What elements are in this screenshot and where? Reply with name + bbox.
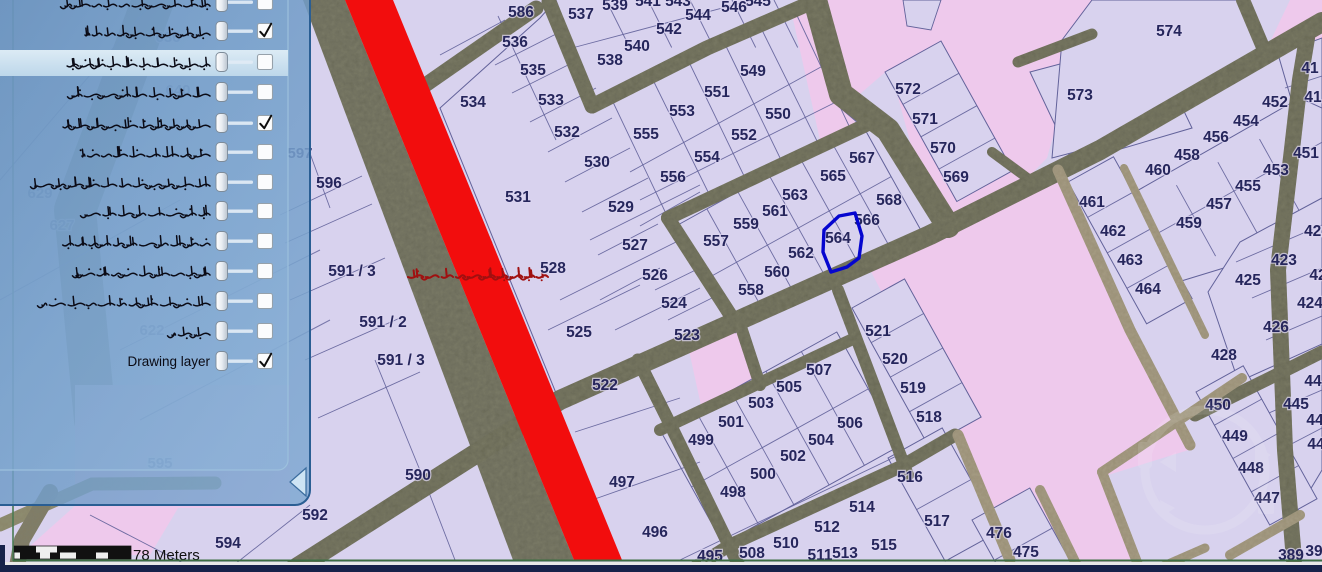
svg-text:462: 462 <box>1100 223 1126 240</box>
svg-text:573: 573 <box>1067 87 1093 104</box>
svg-text:455: 455 <box>1235 178 1261 195</box>
svg-text:453: 453 <box>1263 162 1289 179</box>
svg-text:594: 594 <box>215 535 241 552</box>
svg-text:590: 590 <box>405 467 431 484</box>
svg-text:522: 522 <box>592 377 618 394</box>
svg-text:549: 549 <box>740 63 766 80</box>
svg-text:523: 523 <box>674 327 700 344</box>
svg-text:424: 424 <box>1297 295 1322 312</box>
svg-text:452: 452 <box>1262 94 1288 111</box>
svg-text:503: 503 <box>748 395 774 412</box>
svg-text:558: 558 <box>738 282 764 299</box>
svg-text:Drawing layer: Drawing layer <box>127 354 210 369</box>
svg-text:524: 524 <box>661 295 687 312</box>
svg-text:515: 515 <box>871 537 897 554</box>
svg-text:499: 499 <box>688 432 714 449</box>
svg-text:546: 546 <box>721 0 747 16</box>
svg-text:514: 514 <box>849 499 875 516</box>
svg-text:535: 535 <box>520 62 546 79</box>
svg-text:517: 517 <box>924 513 950 530</box>
svg-text:457: 457 <box>1206 196 1232 213</box>
svg-text:502: 502 <box>780 448 806 465</box>
svg-text:570: 570 <box>930 140 956 157</box>
svg-text:497: 497 <box>609 474 635 491</box>
svg-text:505: 505 <box>776 379 802 396</box>
svg-text:42: 42 <box>1309 267 1322 284</box>
svg-text:591 / 3: 591 / 3 <box>328 263 376 280</box>
svg-text:591 / 3: 591 / 3 <box>377 352 425 369</box>
svg-text:586: 586 <box>508 4 534 21</box>
svg-text:421: 421 <box>1304 223 1322 240</box>
svg-text:574: 574 <box>1156 23 1182 40</box>
svg-text:501: 501 <box>718 414 744 431</box>
svg-text:560: 560 <box>764 264 790 281</box>
svg-text:544: 544 <box>685 7 711 24</box>
svg-text:41: 41 <box>1304 89 1322 106</box>
svg-text:550: 550 <box>765 106 791 123</box>
svg-text:541: 541 <box>635 0 661 10</box>
svg-text:537: 537 <box>568 6 594 23</box>
svg-text:551: 551 <box>704 84 730 101</box>
svg-text:428: 428 <box>1211 347 1237 364</box>
svg-text:556: 556 <box>660 169 686 186</box>
svg-text:555: 555 <box>633 126 659 143</box>
svg-text:534: 534 <box>460 94 486 111</box>
svg-text:423: 423 <box>1271 252 1297 269</box>
svg-text:568: 568 <box>876 192 902 209</box>
svg-text:496: 496 <box>642 524 668 541</box>
svg-text:463: 463 <box>1117 252 1143 269</box>
svg-text:552: 552 <box>731 127 757 144</box>
svg-text:476: 476 <box>986 525 1012 542</box>
svg-text:426: 426 <box>1263 319 1289 336</box>
svg-text:461: 461 <box>1079 194 1105 211</box>
svg-text:542: 542 <box>656 21 682 38</box>
svg-text:44: 44 <box>1306 412 1322 429</box>
svg-text:561: 561 <box>762 203 788 220</box>
svg-text:504: 504 <box>808 432 834 449</box>
svg-text:512: 512 <box>814 519 840 536</box>
svg-text:563: 563 <box>782 187 808 204</box>
svg-text:567: 567 <box>849 150 875 167</box>
svg-text:456: 456 <box>1203 129 1229 146</box>
svg-text:564: 564 <box>825 230 851 247</box>
svg-text:513: 513 <box>832 545 858 562</box>
svg-text:464: 464 <box>1135 281 1161 298</box>
svg-text:533: 533 <box>538 92 564 109</box>
svg-text:460: 460 <box>1145 162 1171 179</box>
svg-text:44: 44 <box>1304 373 1322 390</box>
svg-text:536: 536 <box>502 34 528 51</box>
svg-text:571: 571 <box>912 111 938 128</box>
svg-text:530: 530 <box>584 154 610 171</box>
svg-text:425: 425 <box>1235 272 1261 289</box>
svg-text:559: 559 <box>733 216 759 233</box>
svg-text:592: 592 <box>302 507 328 524</box>
svg-text:507: 507 <box>806 362 832 379</box>
svg-text:521: 521 <box>865 323 891 340</box>
svg-text:554: 554 <box>694 149 720 166</box>
svg-text:572: 572 <box>895 81 921 98</box>
svg-text:553: 553 <box>669 103 695 120</box>
svg-text:498: 498 <box>720 484 746 501</box>
svg-text:528: 528 <box>540 260 566 277</box>
svg-text:519: 519 <box>900 380 926 397</box>
svg-text:451: 451 <box>1293 145 1319 162</box>
svg-text:39: 39 <box>1305 543 1322 560</box>
svg-text:520: 520 <box>882 351 908 368</box>
svg-text:506: 506 <box>837 415 863 432</box>
svg-text:500: 500 <box>750 466 776 483</box>
svg-text:545: 545 <box>745 0 771 10</box>
svg-text:538: 538 <box>597 52 623 69</box>
svg-text:562: 562 <box>788 245 814 262</box>
svg-text:526: 526 <box>642 267 668 284</box>
svg-text:458: 458 <box>1174 147 1200 164</box>
svg-text:529: 529 <box>608 199 634 216</box>
svg-text:41: 41 <box>1301 60 1319 77</box>
svg-text:539: 539 <box>602 0 628 14</box>
svg-text:532: 532 <box>554 124 580 141</box>
svg-text:44: 44 <box>1307 436 1322 453</box>
svg-text:510: 510 <box>773 535 799 552</box>
svg-text:591 / 2: 591 / 2 <box>359 314 406 331</box>
svg-text:508: 508 <box>739 545 765 562</box>
svg-text:445: 445 <box>1283 396 1309 413</box>
svg-text:518: 518 <box>916 409 942 426</box>
svg-text:454: 454 <box>1233 113 1259 130</box>
svg-text:525: 525 <box>566 324 592 341</box>
svg-text:557: 557 <box>703 233 729 250</box>
svg-text:475: 475 <box>1013 544 1039 561</box>
svg-text:565: 565 <box>820 168 846 185</box>
svg-text:459: 459 <box>1176 215 1202 232</box>
svg-text:569: 569 <box>943 169 969 186</box>
svg-text:540: 540 <box>624 38 650 55</box>
svg-text:527: 527 <box>622 237 648 254</box>
svg-text:596: 596 <box>316 175 342 192</box>
svg-text:516: 516 <box>897 469 923 486</box>
svg-text:531: 531 <box>505 189 531 206</box>
